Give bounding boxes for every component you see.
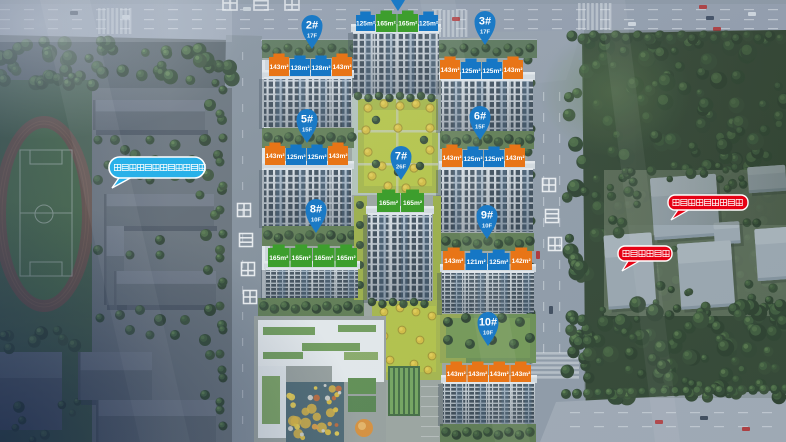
svg-text:165m²: 165m² [398,20,418,27]
svg-text:143m²: 143m² [332,64,352,71]
svg-text:142m²: 142m² [512,258,532,265]
svg-text:128m²: 128m² [290,65,310,72]
svg-text:125m²: 125m² [419,20,439,27]
svg-text:10F: 10F [311,217,321,223]
svg-text:143m²: 143m² [505,155,525,162]
svg-text:125m²: 125m² [484,156,504,163]
svg-text:121m²: 121m² [467,259,487,266]
svg-text:143m²: 143m² [269,64,289,71]
svg-text:3#: 3# [479,16,491,28]
svg-text:26F: 26F [396,164,406,170]
svg-text:17F: 17F [480,29,490,35]
svg-text:10#: 10# [479,317,497,329]
svg-text:165m²: 165m² [292,255,312,262]
svg-text:143m²: 143m² [265,153,285,160]
svg-text:7#: 7# [395,151,407,163]
svg-text:165m²: 165m² [403,200,423,207]
svg-text:165m²: 165m² [337,255,357,262]
svg-text:165m²: 165m² [377,20,397,27]
svg-text:143m²: 143m² [442,155,462,162]
svg-text:143m²: 143m² [328,153,348,160]
svg-text:143m²: 143m² [490,371,510,378]
svg-text:125m²: 125m² [356,20,376,27]
svg-text:10F: 10F [482,223,492,229]
svg-text:125m²: 125m² [461,68,481,75]
svg-text:143m²: 143m² [440,67,460,74]
svg-text:143m²: 143m² [444,258,464,265]
svg-text:143m²: 143m² [468,371,488,378]
svg-text:10F: 10F [483,330,493,336]
svg-text:6#: 6# [474,111,486,123]
svg-text:165m²: 165m² [269,255,289,262]
svg-text:128m²: 128m² [311,65,331,72]
svg-text:165m²: 165m² [379,200,399,207]
svg-text:125m²: 125m² [489,259,509,266]
svg-text:125m²: 125m² [482,68,502,75]
svg-text:125m²: 125m² [286,154,306,161]
svg-text:8#: 8# [310,204,322,216]
svg-text:165m²: 165m² [314,255,334,262]
svg-text:15F: 15F [302,127,312,133]
svg-text:5#: 5# [301,114,313,126]
svg-text:2#: 2# [306,20,318,32]
svg-text:15F: 15F [475,124,485,130]
svg-text:143m²: 143m² [503,67,523,74]
svg-text:125m²: 125m² [307,154,327,161]
svg-text:9#: 9# [481,210,493,222]
svg-text:125m²: 125m² [463,156,483,163]
svg-text:143m²: 143m² [511,371,531,378]
svg-text:143m²: 143m² [447,371,467,378]
svg-text:17F: 17F [307,33,317,39]
